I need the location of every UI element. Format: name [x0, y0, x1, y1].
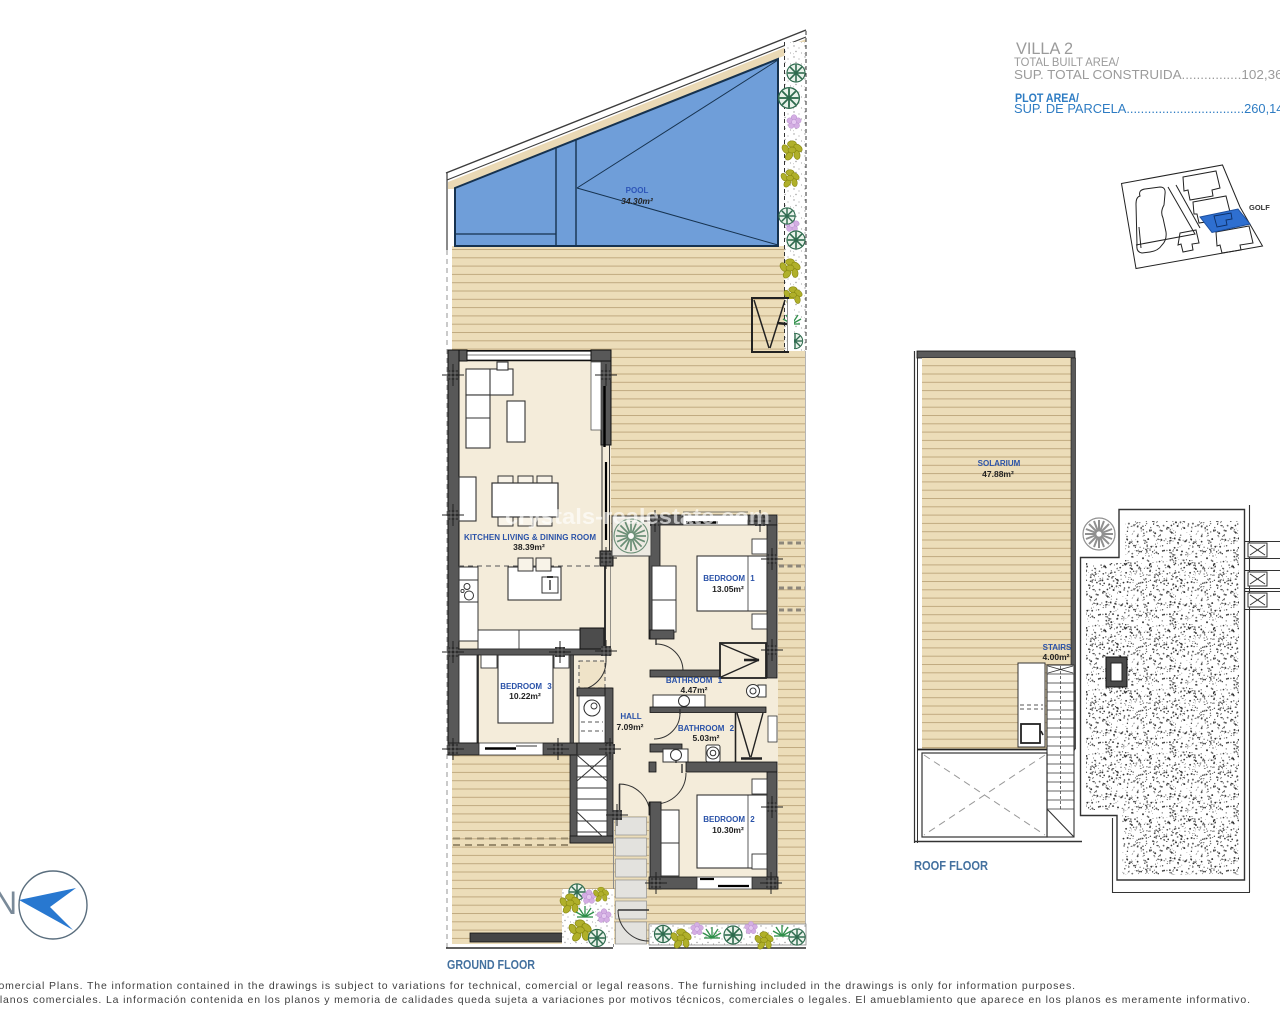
svg-text:KITCHEN LIVING & DINING ROOM: KITCHEN LIVING & DINING ROOM	[464, 533, 596, 542]
svg-text:SUP. TOTAL CONSTRUIDA.........: SUP. TOTAL CONSTRUIDA................102…	[1014, 67, 1280, 82]
svg-text:crystals-realestate.com: crystals-realestate.com	[505, 504, 770, 529]
svg-text:N: N	[0, 885, 17, 921]
svg-text:5.03m²: 5.03m²	[693, 733, 720, 743]
svg-text:GOLF: GOLF	[1249, 203, 1270, 212]
svg-text:10.22m²: 10.22m²	[509, 691, 541, 701]
svg-text:ROOF FLOOR: ROOF FLOOR	[914, 859, 988, 873]
svg-text:SOLARIUM: SOLARIUM	[978, 459, 1021, 468]
svg-text:47.88m²: 47.88m²	[982, 469, 1014, 479]
svg-text:38.39m²: 38.39m²	[513, 542, 545, 552]
svg-text:VILLA 2: VILLA 2	[1016, 40, 1073, 58]
svg-text:BATHROOM 2: BATHROOM 2	[678, 724, 735, 733]
svg-text:BATHROOM 1: BATHROOM 1	[666, 676, 723, 685]
svg-text:4.47m²: 4.47m²	[681, 685, 708, 695]
svg-text:BEDROOM 1: BEDROOM 1	[703, 574, 755, 583]
svg-text:7.09m²: 7.09m²	[617, 722, 644, 732]
svg-text:BEDROOM 2: BEDROOM 2	[703, 815, 755, 824]
svg-text:Comercial Plans. The informati: Comercial Plans. The information contain…	[0, 980, 1075, 992]
svg-text:HALL: HALL	[620, 712, 641, 721]
svg-text:GROUND FLOOR: GROUND FLOOR	[447, 958, 535, 972]
svg-text:13.05m²: 13.05m²	[712, 584, 744, 594]
svg-text:4.00m²: 4.00m²	[1043, 652, 1070, 662]
svg-text:POOL: POOL	[626, 186, 649, 195]
svg-text:BEDROOM 3: BEDROOM 3	[500, 682, 552, 691]
svg-text:10.30m²: 10.30m²	[712, 825, 744, 835]
svg-text:34.30m²: 34.30m²	[621, 196, 654, 206]
svg-text:STAIRS: STAIRS	[1043, 643, 1072, 652]
svg-text:SUP. DE PARCELA...............: SUP. DE PARCELA.........................…	[1014, 101, 1280, 116]
svg-text:Planos comerciales. La informa: Planos comerciales. La información conte…	[0, 994, 1250, 1006]
